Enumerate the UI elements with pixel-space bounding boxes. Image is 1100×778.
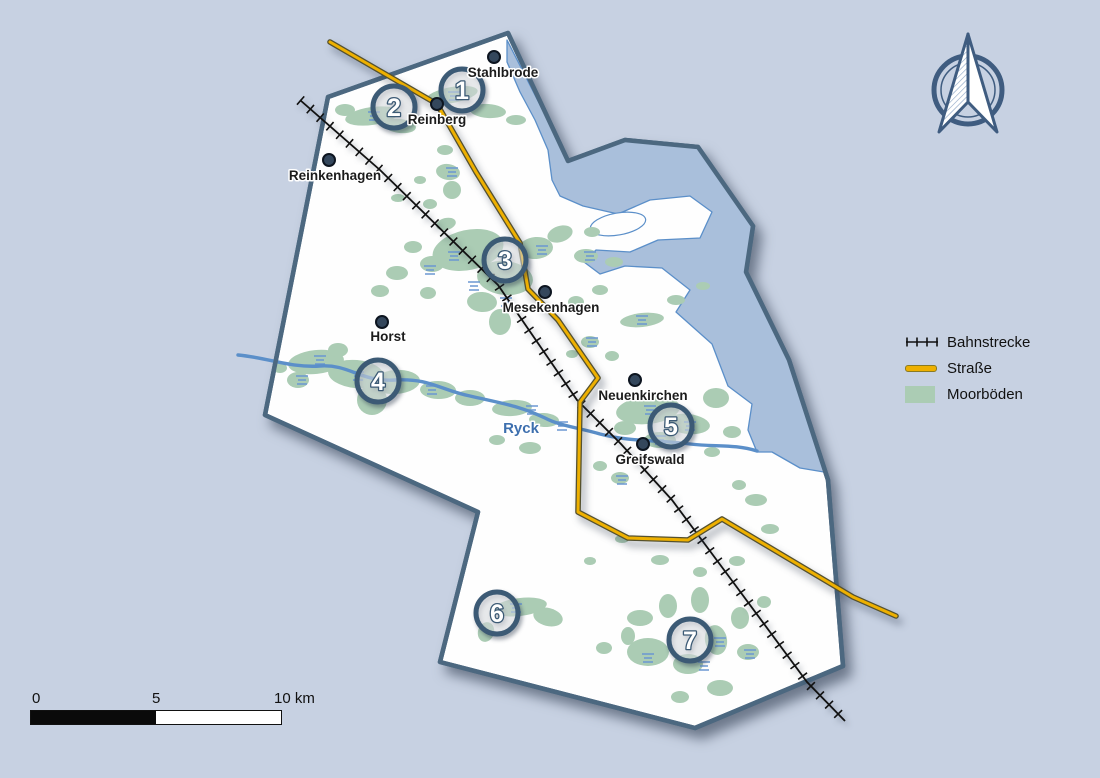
scale-bar: 0 5 10 km — [30, 690, 330, 725]
site-marker-6-number: 6 — [490, 600, 504, 628]
railway-line-icon — [905, 335, 939, 349]
town-label-stahlbrode: Stahlbrode — [468, 65, 539, 80]
town-marker-reinberg — [431, 98, 443, 110]
town-marker-reinkenhagen — [323, 154, 335, 166]
legend-item-moor: Moorböden — [905, 385, 1030, 403]
site-marker-4: 4 — [357, 360, 399, 402]
site-marker-5-number: 5 — [664, 413, 678, 441]
scale-bar-labels: 0 5 10 km — [30, 690, 330, 710]
town-label-neuenkirchen: Neuenkirchen — [598, 388, 687, 403]
town-label-reinkenhagen: Reinkenhagen — [289, 168, 381, 183]
legend-label-railway: Bahnstrecke — [947, 334, 1030, 351]
river-label-ryck: Ryck — [503, 420, 540, 437]
town-label-mesekenhagen: Mesekenhagen — [503, 300, 600, 315]
site-marker-7-number: 7 — [683, 627, 697, 655]
north-arrow-icon — [922, 28, 1014, 145]
site-marker-6: 6 — [476, 592, 518, 634]
site-marker-4-number: 4 — [371, 368, 385, 396]
site-marker-3-number: 3 — [498, 247, 512, 275]
site-marker-3: 3 — [484, 239, 526, 281]
road-line-icon — [905, 365, 939, 372]
scale-tick-10: 10 km — [274, 690, 315, 707]
site-marker-7: 7 — [669, 619, 711, 661]
site-marker-1-number: 1 — [455, 77, 469, 105]
scale-tick-0: 0 — [32, 690, 40, 707]
map-legend: Bahnstrecke Straße Moorböden — [905, 333, 1030, 411]
moor-swatch-icon — [905, 386, 939, 403]
town-label-greifswald: Greifswald — [615, 452, 684, 467]
town-label-horst: Horst — [370, 329, 406, 344]
town-marker-horst — [376, 316, 388, 328]
town-marker-greifswald — [637, 438, 649, 450]
legend-item-road: Straße — [905, 359, 1030, 377]
town-label-reinberg: Reinberg — [408, 112, 467, 127]
town-marker-neuenkirchen — [629, 374, 641, 386]
site-marker-2-number: 2 — [387, 94, 401, 122]
scale-tick-5: 5 — [152, 690, 160, 707]
legend-label-road: Straße — [947, 360, 992, 377]
town-marker-mesekenhagen — [539, 286, 551, 298]
legend-item-railway: Bahnstrecke — [905, 333, 1030, 351]
scale-bar-rule — [30, 710, 282, 725]
legend-label-moor: Moorböden — [947, 386, 1023, 403]
site-marker-5: 5 — [650, 405, 692, 447]
town-marker-stahlbrode — [488, 51, 500, 63]
